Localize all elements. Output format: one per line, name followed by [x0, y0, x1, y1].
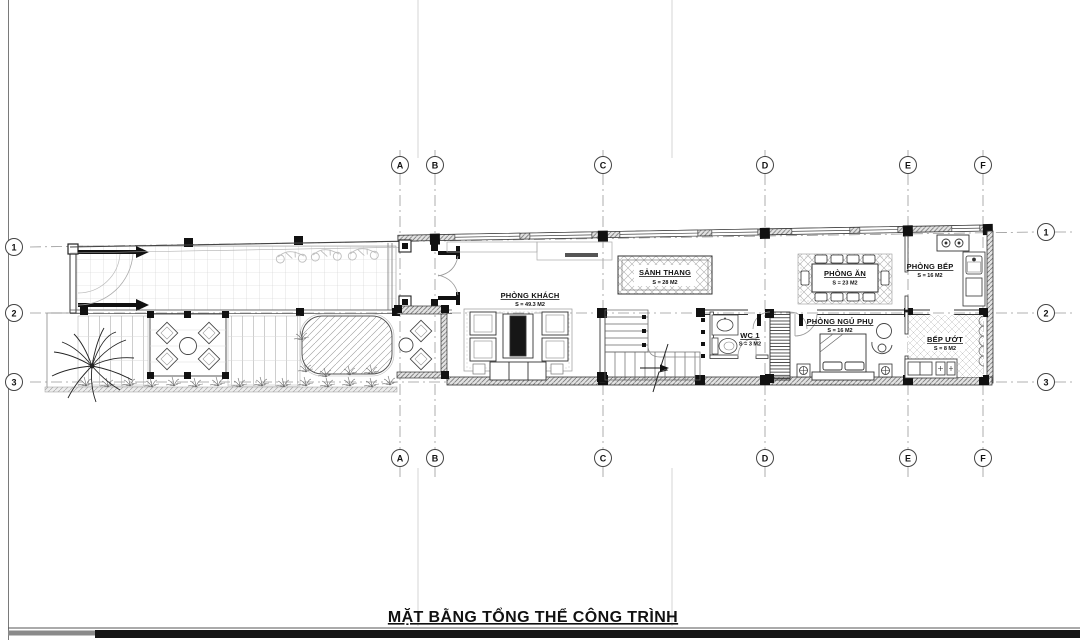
garage-area	[68, 236, 396, 313]
grid-marker-F-top: F	[975, 157, 992, 174]
grid-marker-2-left: 2	[6, 305, 23, 322]
entry-double-door	[438, 246, 460, 305]
dressing-corner	[872, 324, 892, 354]
grid-marker-D-top: D	[757, 157, 774, 174]
living-room: PHÒNG KHÁCH S = 49.3 M2	[447, 242, 612, 380]
wc-toilet	[712, 338, 737, 354]
sheet-title: MẶT BẰNG TỔNG THỂ CÔNG TRÌNH	[388, 607, 678, 626]
svg-text:E: E	[905, 454, 911, 464]
grid-marker-C-bottom: C	[595, 450, 612, 467]
bed	[812, 334, 874, 380]
svg-text:E: E	[905, 161, 911, 171]
room-area-bep-uot: S = 8 M2	[934, 346, 956, 352]
room-area-phong-ngu-phu: S = 16 M2	[827, 328, 852, 334]
window	[455, 233, 520, 240]
grid-marker-E-bottom: E	[900, 450, 917, 467]
svg-text:B: B	[432, 454, 439, 464]
svg-text:3: 3	[11, 378, 16, 388]
kitchen-counter	[963, 252, 985, 306]
dining-room: PHÒNG ĂN S = 23 M2	[798, 254, 892, 304]
sofa-set	[464, 309, 572, 380]
stair-hall: SẢNH THANG S = 28 M2	[597, 256, 712, 392]
svg-text:C: C	[600, 454, 607, 464]
garden-seating-platform	[147, 311, 229, 379]
svg-text:D: D	[762, 161, 769, 171]
grid-markers: A B C D E F A B C D E F 1 2 3 1 2 3	[6, 157, 1055, 467]
svg-text:C: C	[600, 161, 607, 171]
room-label-phong-ngu-phu: PHÒNG NGỦ PHỤ	[807, 317, 874, 326]
room-area-wc: S = 3 M2	[739, 342, 761, 348]
drawing-sheet: A B C D E F A B C D E F 1 2 3 1 2 3	[0, 0, 1080, 640]
room-label-sanh-thang: SẢNH THANG	[639, 268, 691, 277]
svg-text:1: 1	[1043, 228, 1048, 238]
wet-kitchen-counter	[905, 359, 957, 378]
kitchen: PHÒNG BẾP S = 16 M2	[905, 235, 985, 310]
grid-marker-A-top: A	[392, 157, 409, 174]
svg-text:F: F	[980, 161, 986, 171]
room-label-wc: WC 1	[740, 331, 760, 340]
grid-marker-C-top: C	[595, 157, 612, 174]
svg-text:A: A	[397, 454, 404, 464]
room-area-phong-bep: S = 16 M2	[917, 273, 942, 279]
window	[952, 225, 980, 231]
stair-hall-plate: SẢNH THANG S = 28 M2	[618, 256, 712, 294]
grid-marker-1-right: 1	[1038, 224, 1055, 241]
pond	[300, 314, 394, 376]
wet-kitchen: BẾP ƯỚT S = 8 M2	[905, 312, 984, 378]
floor-plan-svg: A B C D E F A B C D E F 1 2 3 1 2 3	[0, 0, 1080, 640]
window	[860, 227, 898, 234]
grid-marker-F-bottom: F	[975, 450, 992, 467]
grid-marker-E-top: E	[900, 157, 917, 174]
garden-nook	[394, 305, 449, 379]
wc-sink	[712, 315, 738, 335]
room-area-phong-khach: S = 49.3 M2	[515, 302, 545, 308]
svg-text:3: 3	[1043, 378, 1048, 388]
entry-porch	[399, 237, 460, 313]
window	[792, 227, 850, 234]
grid-marker-3-right: 3	[1038, 374, 1055, 391]
room-area-sanh-thang: S = 28 M2	[652, 280, 677, 286]
grid-marker-2-right: 2	[1038, 305, 1055, 322]
grid-marker-B-bottom: B	[427, 450, 444, 467]
garden	[45, 305, 452, 402]
svg-text:B: B	[432, 161, 439, 171]
room-label-phong-bep: PHÒNG BẾP	[907, 261, 954, 271]
svg-text:D: D	[762, 454, 769, 464]
room-label-bep-uot: BẾP ƯỚT	[927, 334, 963, 344]
grid-marker-D-bottom: D	[757, 450, 774, 467]
svg-text:1: 1	[11, 243, 16, 253]
svg-text:F: F	[980, 454, 986, 464]
grid-marker-A-bottom: A	[392, 450, 409, 467]
grid-marker-1-left: 1	[6, 239, 23, 256]
footer-bar-gray	[8, 631, 95, 636]
svg-text:A: A	[397, 161, 404, 171]
stove	[937, 235, 969, 251]
footer-bar-black	[95, 630, 1080, 638]
room-area-phong-an: S = 23 M2	[832, 281, 857, 287]
window	[712, 229, 758, 236]
svg-text:2: 2	[1043, 309, 1048, 319]
bedroom: PHÒNG NGỦ PHỤ S = 16 M2	[797, 317, 892, 380]
grid-marker-B-top: B	[427, 157, 444, 174]
window	[620, 230, 698, 237]
svg-text:2: 2	[11, 309, 16, 319]
grid-marker-3-left: 3	[6, 374, 23, 391]
window	[530, 232, 592, 239]
room-label-phong-an: PHÒNG ĂN	[824, 269, 866, 278]
room-label-phong-khach: PHÒNG KHÁCH	[501, 291, 560, 300]
